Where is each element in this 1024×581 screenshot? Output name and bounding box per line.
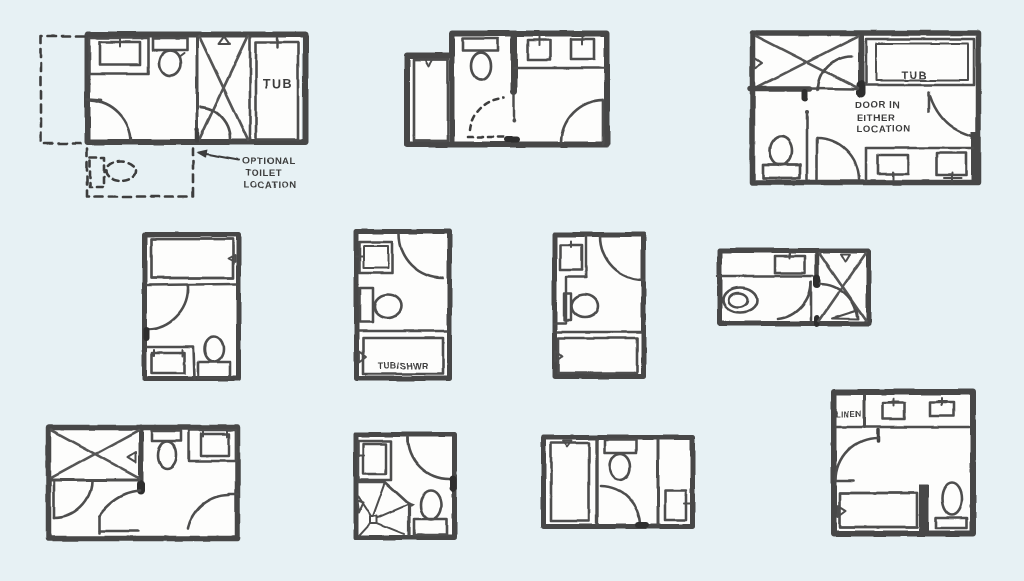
svg-text:LOCATION: LOCATION xyxy=(857,124,911,135)
svg-text:EITHER: EITHER xyxy=(857,113,895,124)
svg-text:OPTIONAL: OPTIONAL xyxy=(242,156,296,167)
svg-text:TUB/SHWR: TUB/SHWR xyxy=(378,361,429,371)
svg-text:DOOR IN: DOOR IN xyxy=(855,100,900,111)
svg-text:LINEN: LINEN xyxy=(837,410,862,419)
svg-text:TUB: TUB xyxy=(263,77,293,91)
svg-text:TOILET: TOILET xyxy=(245,168,282,179)
svg-text:TUB: TUB xyxy=(901,70,928,82)
svg-text:LOCATION: LOCATION xyxy=(243,180,297,191)
